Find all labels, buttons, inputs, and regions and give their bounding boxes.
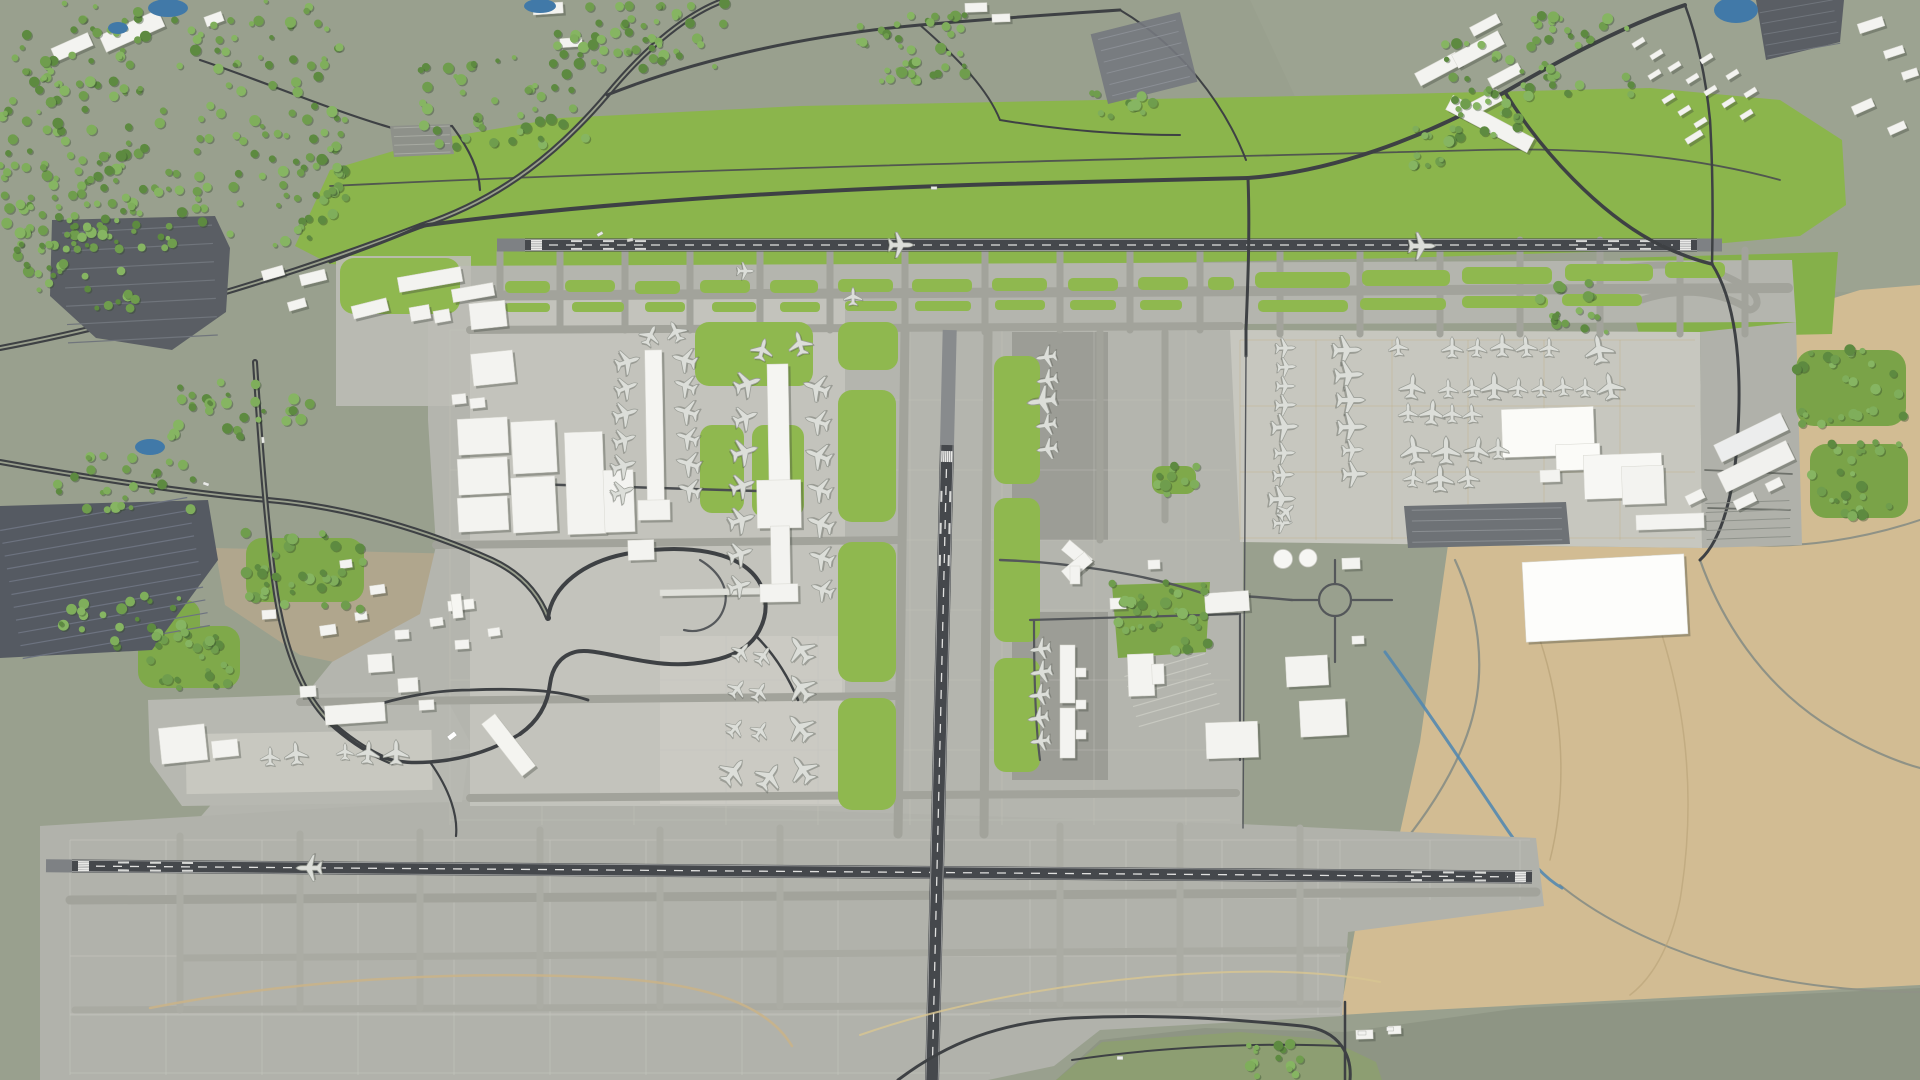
building: [767, 364, 790, 484]
building: [1060, 708, 1075, 758]
building: [211, 739, 239, 759]
building: [564, 431, 606, 534]
building: [300, 685, 317, 697]
building: [419, 699, 435, 710]
building: [1299, 699, 1347, 737]
building: [457, 496, 509, 533]
building: [1204, 590, 1249, 613]
building: [1070, 566, 1080, 584]
building: [1621, 465, 1664, 504]
scene-svg: [0, 0, 1920, 1080]
building: [470, 350, 515, 386]
building: [1522, 554, 1688, 642]
building: [433, 309, 451, 324]
building: [1060, 645, 1075, 703]
building: [455, 640, 470, 650]
building: [452, 393, 467, 404]
vehicle: [1358, 1031, 1366, 1035]
building: [511, 476, 558, 533]
building: [262, 610, 277, 620]
building: [488, 627, 501, 637]
building: [638, 500, 670, 521]
building: [1076, 730, 1086, 739]
building: [469, 300, 508, 330]
building: [603, 469, 635, 532]
building: [457, 417, 509, 456]
vehicle: [261, 437, 265, 443]
building: [645, 350, 665, 502]
building: [319, 624, 336, 636]
building: [1127, 654, 1154, 697]
building: [992, 14, 1010, 23]
building: [1076, 700, 1086, 709]
building: [1148, 560, 1160, 569]
building: [430, 617, 444, 627]
building: [369, 584, 385, 595]
building: [1636, 513, 1704, 530]
building: [1076, 668, 1086, 677]
building: [1352, 636, 1364, 644]
building: [1152, 664, 1165, 684]
building: [1342, 558, 1360, 570]
building: [340, 559, 353, 569]
building: [1205, 721, 1258, 759]
vehicle: [1387, 1027, 1394, 1031]
vehicle: [1117, 1056, 1123, 1060]
building: [398, 677, 419, 692]
building: [470, 397, 486, 409]
building: [760, 584, 798, 603]
vehicle: [931, 187, 937, 190]
building: [770, 526, 790, 586]
airport-aerial-render: [0, 0, 1920, 1080]
building: [965, 3, 987, 13]
building: [451, 594, 463, 619]
building: [511, 420, 558, 474]
building: [628, 540, 655, 561]
building: [1540, 470, 1560, 483]
building: [457, 457, 509, 496]
building: [324, 702, 385, 725]
building: [367, 653, 392, 673]
building: [395, 630, 410, 640]
building: [1285, 655, 1329, 687]
building: [158, 724, 208, 765]
building: [757, 480, 802, 529]
